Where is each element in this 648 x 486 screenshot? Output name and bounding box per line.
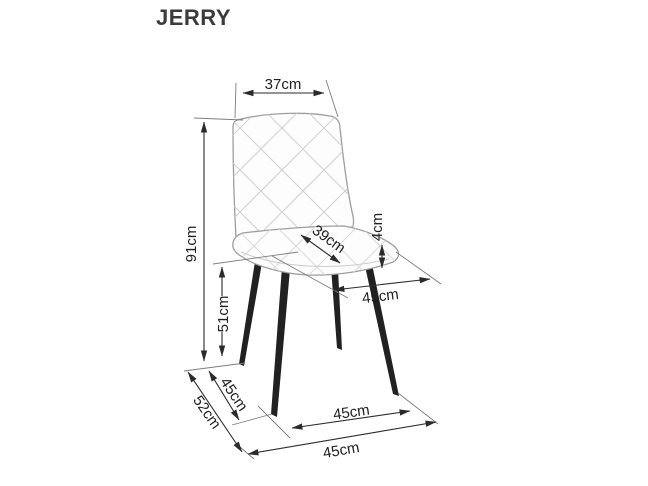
chair-leg-front-left xyxy=(271,267,290,417)
ext-floor-left xyxy=(184,363,245,371)
chair-leg-back-left xyxy=(239,255,263,366)
dim-label-cushion-thickness: 4cm xyxy=(369,213,386,241)
dimension-backrest-width: 37cm xyxy=(243,76,324,93)
dimension-total-height: 91cm xyxy=(183,122,204,361)
chair-leg-front-right xyxy=(363,257,399,396)
dim-label-backrest-width: 37cm xyxy=(265,76,302,93)
ext-seat-width-right xyxy=(396,252,441,284)
dimension-front-leg-span: 45cm xyxy=(292,402,410,428)
dim-label-total-width: 45cm xyxy=(322,439,361,462)
dim-label-front-leg-span: 45cm xyxy=(332,402,371,424)
dim-label-total-height: 91cm xyxy=(183,226,200,263)
ext-front-left-leg-in xyxy=(232,414,272,425)
dim-label-seat-width: 45cm xyxy=(361,286,399,307)
dimension-total-width: 45cm xyxy=(248,422,436,462)
dim-label-seat-height: 51cm xyxy=(215,296,232,333)
ext-backrest-width-right xyxy=(326,80,338,117)
dimension-diagram: 37cm 91cm 51cm 39cm 4cm 45cm 45cm xyxy=(0,0,648,486)
ext-front-right-leg xyxy=(398,393,438,424)
chair-leg-back-right xyxy=(331,267,342,350)
ext-total-height-top xyxy=(194,118,243,120)
dimension-seat-width: 45cm xyxy=(334,279,430,307)
dim-label-leg-span-depth: 45cm xyxy=(216,375,251,415)
product-dimension-sheet: JERRY xyxy=(0,0,648,486)
dim-label-total-depth: 52cm xyxy=(189,393,224,433)
dimension-seat-height: 51cm xyxy=(215,267,232,356)
ext-backrest-width-left xyxy=(235,83,236,118)
chair-illustration xyxy=(91,105,488,417)
